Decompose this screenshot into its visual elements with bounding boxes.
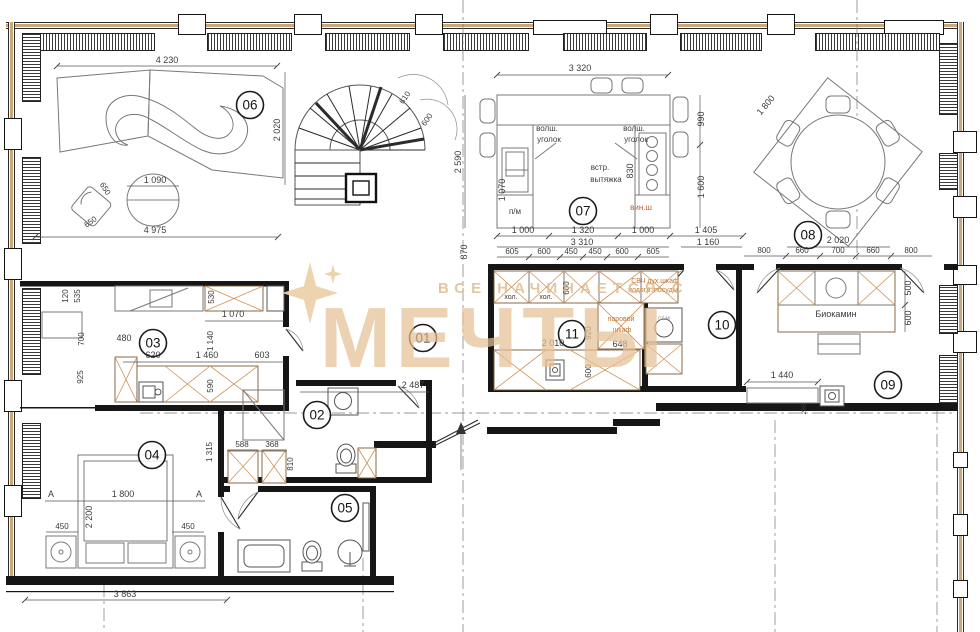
annotation: уголок (624, 135, 648, 144)
annotation: паровой (608, 315, 635, 323)
dim: 600 (584, 364, 593, 378)
dim: 2 020 (827, 235, 850, 245)
dim: 600 (615, 247, 629, 256)
annotation: шкаф (613, 327, 632, 334)
dim: 605 (646, 247, 660, 256)
dim: 830 (625, 163, 635, 178)
dim: 600 (537, 247, 551, 256)
annotation: п/м (509, 207, 521, 216)
dim: 800 (757, 246, 771, 255)
annotation: СВЧ дух.шкаф (631, 278, 679, 285)
dim: 800 (904, 246, 918, 255)
dim: 480 (116, 333, 131, 343)
room-label-05: 05 (337, 501, 352, 516)
dim: 650 (83, 214, 100, 229)
dim: 1 070 (222, 309, 245, 319)
dim: 2 010 (542, 338, 565, 348)
dim: 620 (145, 350, 160, 360)
dim: 1 000 (632, 225, 655, 235)
dim: 120 (61, 289, 70, 303)
room-label-08: 08 (800, 228, 815, 243)
dim: 2 020 (272, 119, 282, 142)
dim: 450 (55, 522, 69, 531)
annotation: вин.ш (630, 203, 652, 212)
dim: 285 (801, 403, 808, 414)
dim: 1 320 (572, 225, 595, 235)
room-label-04: 04 (144, 448, 160, 463)
dim: 1 440 (771, 370, 794, 380)
dim: 925 (76, 370, 85, 384)
annotation: ст.м (658, 315, 670, 322)
dim: 990 (696, 111, 706, 126)
dim: 450 (564, 247, 578, 256)
dim: 660 (795, 246, 809, 255)
toilet (302, 541, 322, 571)
entrance-arrow (456, 422, 466, 434)
dim: 535 (73, 289, 82, 303)
dim: 870 (459, 244, 469, 259)
dining-area (754, 78, 922, 246)
bathroom-02 (328, 388, 358, 473)
room-label-02: 02 (309, 408, 324, 423)
dim: 2 200 (84, 506, 94, 529)
annotation: хол. (539, 294, 552, 301)
round-table (791, 115, 885, 209)
biofireplace-unit (747, 271, 895, 406)
annotation: вытяжка (590, 175, 622, 184)
dim: 610 (397, 89, 412, 106)
dim: 450 (588, 247, 602, 256)
dim: 4 975 (144, 225, 167, 235)
section-marker: А (48, 489, 54, 499)
spiral-stair (285, 72, 457, 205)
dim: 600 (903, 310, 913, 325)
room-label-11: 11 (565, 327, 579, 342)
room-label-10: 10 (714, 318, 729, 333)
annotation: хол. (504, 294, 517, 301)
dim: 810 (286, 457, 295, 471)
dim: 1 090 (144, 175, 167, 185)
towel-radiator (363, 503, 369, 551)
dim: 1 070 (497, 179, 507, 202)
dim: 3 320 (569, 63, 592, 73)
dim: 1 315 (205, 441, 214, 462)
room-label-07: 07 (575, 204, 590, 219)
dim: 600 (419, 111, 434, 128)
dim: 4 230 (156, 55, 179, 65)
dim: 1 140 (206, 330, 215, 351)
low-cabinet (747, 388, 818, 403)
room-label-01: 01 (415, 331, 430, 346)
dim: 3 863 (114, 589, 137, 599)
nightstand (175, 536, 205, 568)
bedroom-04 (45, 455, 205, 568)
freeform-sofa (106, 96, 248, 154)
dim: 920 (584, 326, 593, 340)
dim: 1 800 (755, 93, 777, 117)
room-label-06: 06 (242, 98, 257, 113)
nightstand (46, 536, 76, 568)
stove-box (820, 386, 844, 406)
dim: 3 310 (571, 237, 594, 247)
dim: 660 (866, 246, 880, 255)
annotation: уголок (537, 135, 561, 144)
dim: 2 487 (402, 380, 425, 390)
dim: 600 (562, 281, 571, 295)
dim: 603 (254, 350, 269, 360)
dim: 1 600 (696, 176, 706, 199)
dim: 1 160 (697, 237, 720, 247)
room-label-03: 03 (145, 336, 160, 351)
plan-drawing: 01 02 03 04 05 06 07 08 09 10 11 4 230 4… (0, 0, 980, 632)
dim: 1 800 (112, 489, 135, 499)
dim: 700 (831, 246, 845, 255)
dim: 605 (505, 247, 519, 256)
dim: 530 (207, 290, 216, 304)
dim: 588 (235, 440, 249, 449)
dim: 500 (903, 280, 913, 295)
dim: 450 (181, 522, 195, 531)
toilet (336, 444, 356, 473)
dim: 590 (206, 379, 215, 393)
annotation: волш. (623, 124, 645, 133)
section-marker: А (196, 489, 202, 499)
dim: 2 590 (453, 151, 463, 174)
hall-closets (228, 390, 376, 483)
annotation: подогр. посуды (628, 287, 677, 294)
floor-plan-sheet: 01 02 03 04 05 06 07 08 09 10 11 4 230 4… (0, 0, 980, 632)
dim: 648 (612, 339, 627, 349)
annotation: встр. (591, 163, 610, 172)
dim: 1 000 (512, 225, 535, 235)
dim: 368 (265, 440, 279, 449)
dim: 700 (77, 332, 86, 346)
annotation: волш. (536, 124, 558, 133)
room-label-09: 09 (880, 378, 895, 393)
dim: 1 405 (695, 225, 718, 235)
annotation: Биокамин (815, 309, 856, 319)
dim: 1 460 (196, 350, 219, 360)
